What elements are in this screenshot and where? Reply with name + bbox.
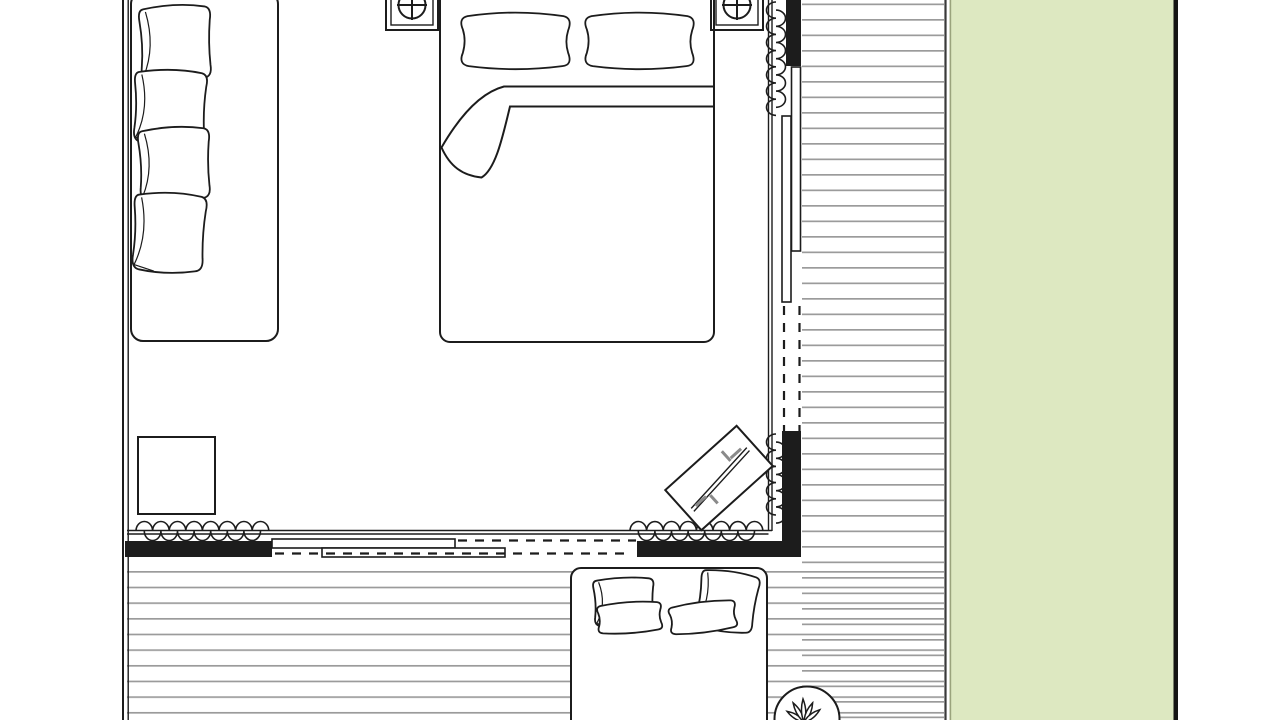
sliding-panel-right-outer xyxy=(792,67,801,251)
sofa-cushion-lumbar-left xyxy=(597,600,663,635)
floor-plan-stage xyxy=(0,0,1280,720)
sliding-panel-bottom-outer xyxy=(272,539,455,548)
floor-plan-canvas xyxy=(0,0,1280,720)
bed-pillow-left xyxy=(461,13,569,70)
lawn-border xyxy=(1174,0,1179,720)
bed-pillow-right xyxy=(585,13,693,70)
sliding-panel-right-inner xyxy=(782,116,791,302)
ceiling-speaker-left xyxy=(386,0,438,30)
wall-segment-right-top xyxy=(786,0,801,66)
side-table xyxy=(138,437,215,514)
window-glass-bottom xyxy=(127,531,772,535)
daybed-cushion-4 xyxy=(131,191,207,275)
double-bed xyxy=(440,0,714,342)
curtain-coil-top-right xyxy=(767,2,786,115)
wall-segment-bottom-right xyxy=(637,541,801,557)
wall-segment-bottom-left xyxy=(125,541,272,557)
ceiling-speaker-right xyxy=(711,0,763,30)
clothes-rack xyxy=(665,426,772,530)
lawn-area xyxy=(950,0,1174,720)
daybed-cushion-3 xyxy=(138,126,212,203)
